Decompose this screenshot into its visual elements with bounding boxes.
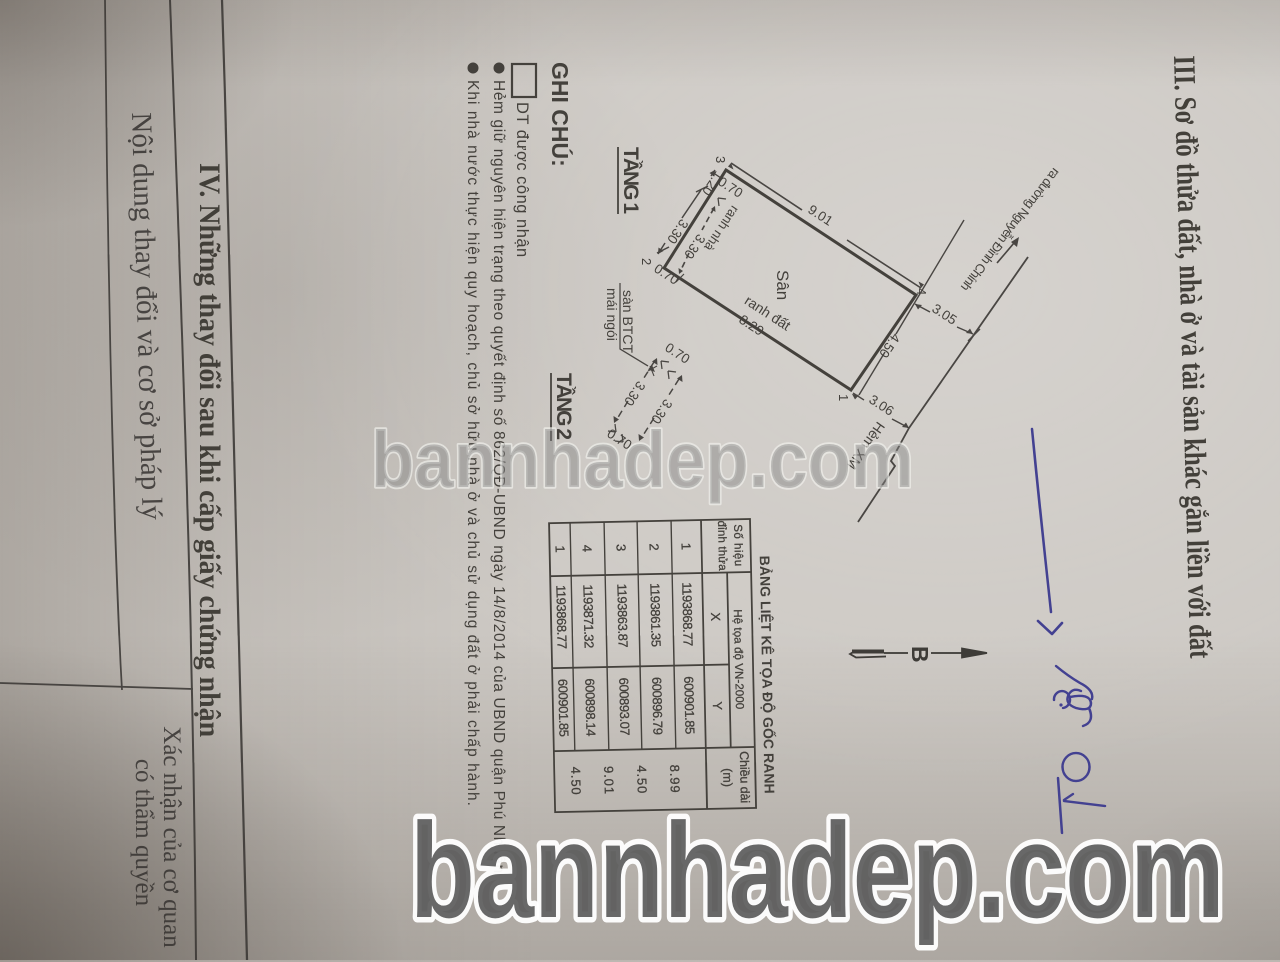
- svg-text:bannhadep.com: bannhadep.com: [410, 795, 1225, 946]
